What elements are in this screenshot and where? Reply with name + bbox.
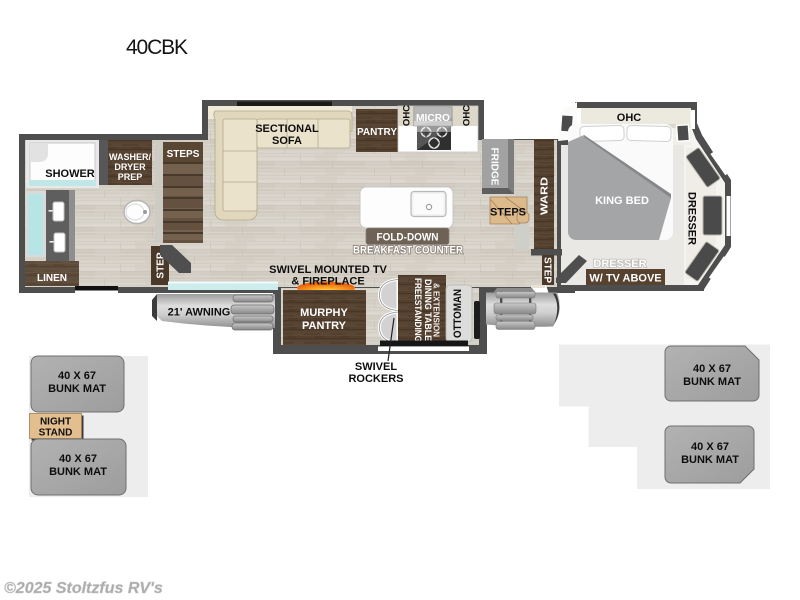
svg-text:40 X 67: 40 X 67 — [59, 453, 97, 465]
svg-text:FREESTANDING: FREESTANDING — [413, 278, 423, 342]
svg-text:FRIDGE: FRIDGE — [489, 148, 500, 186]
svg-text:KING BED: KING BED — [595, 195, 649, 207]
svg-text:FOLD-DOWN: FOLD-DOWN — [377, 232, 439, 244]
svg-text:OHC: OHC — [402, 105, 413, 126]
svg-text:OHC: OHC — [462, 105, 473, 126]
svg-text:OHC: OHC — [617, 112, 642, 124]
svg-text:STEP: STEP — [542, 257, 553, 283]
svg-text:PREP: PREP — [118, 172, 143, 182]
svg-text:DRYER: DRYER — [114, 162, 146, 172]
svg-text:OTTOMAN: OTTOMAN — [452, 289, 464, 338]
svg-text:WARD: WARD — [540, 177, 551, 215]
svg-text:PANTRY: PANTRY — [357, 127, 397, 138]
svg-text:BUNK MAT: BUNK MAT — [681, 454, 739, 466]
svg-text:BREAKFAST COUNTER: BREAKFAST COUNTER — [353, 245, 463, 257]
svg-text:SECTIONAL: SECTIONAL — [255, 123, 319, 135]
svg-text:& EXTENSION: & EXTENSION — [432, 283, 441, 337]
svg-text:40 X 67: 40 X 67 — [58, 370, 96, 382]
svg-text:40 X 67: 40 X 67 — [691, 441, 729, 453]
svg-text:& FIREPLACE: & FIREPLACE — [291, 276, 364, 288]
svg-text:PANTRY: PANTRY — [302, 320, 347, 332]
svg-text:BUNK MAT: BUNK MAT — [49, 466, 107, 478]
svg-text:STEPS: STEPS — [490, 207, 526, 219]
svg-text:MURPHY: MURPHY — [300, 307, 348, 319]
svg-text:BUNK MAT: BUNK MAT — [48, 383, 106, 395]
svg-text:NIGHT: NIGHT — [40, 417, 71, 428]
svg-text:WASHER/: WASHER/ — [109, 152, 152, 162]
svg-text:STEPS: STEPS — [167, 149, 200, 160]
svg-text:40CBK: 40CBK — [126, 36, 188, 59]
svg-text:BUNK MAT: BUNK MAT — [683, 376, 741, 388]
svg-text:W/ TV ABOVE: W/ TV ABOVE — [589, 273, 661, 285]
svg-text:STAND: STAND — [39, 428, 73, 439]
svg-text:ROCKERS: ROCKERS — [348, 373, 403, 385]
svg-text:©2025 Stoltzfus RV's: ©2025 Stoltzfus RV's — [4, 580, 163, 597]
svg-text:SHOWER: SHOWER — [45, 168, 95, 180]
svg-text:21' AWNING: 21' AWNING — [168, 307, 231, 319]
svg-text:DRESSER: DRESSER — [593, 258, 646, 270]
svg-text:DRESSER: DRESSER — [686, 192, 698, 245]
svg-text:DINING TABLE: DINING TABLE — [423, 279, 433, 341]
svg-text:SWIVEL: SWIVEL — [355, 361, 397, 373]
svg-text:SWIVEL MOUNTED TV: SWIVEL MOUNTED TV — [269, 264, 387, 276]
svg-text:LINEN: LINEN — [37, 273, 67, 284]
svg-text:SOFA: SOFA — [272, 135, 302, 147]
svg-text:40 X 67: 40 X 67 — [693, 363, 731, 375]
